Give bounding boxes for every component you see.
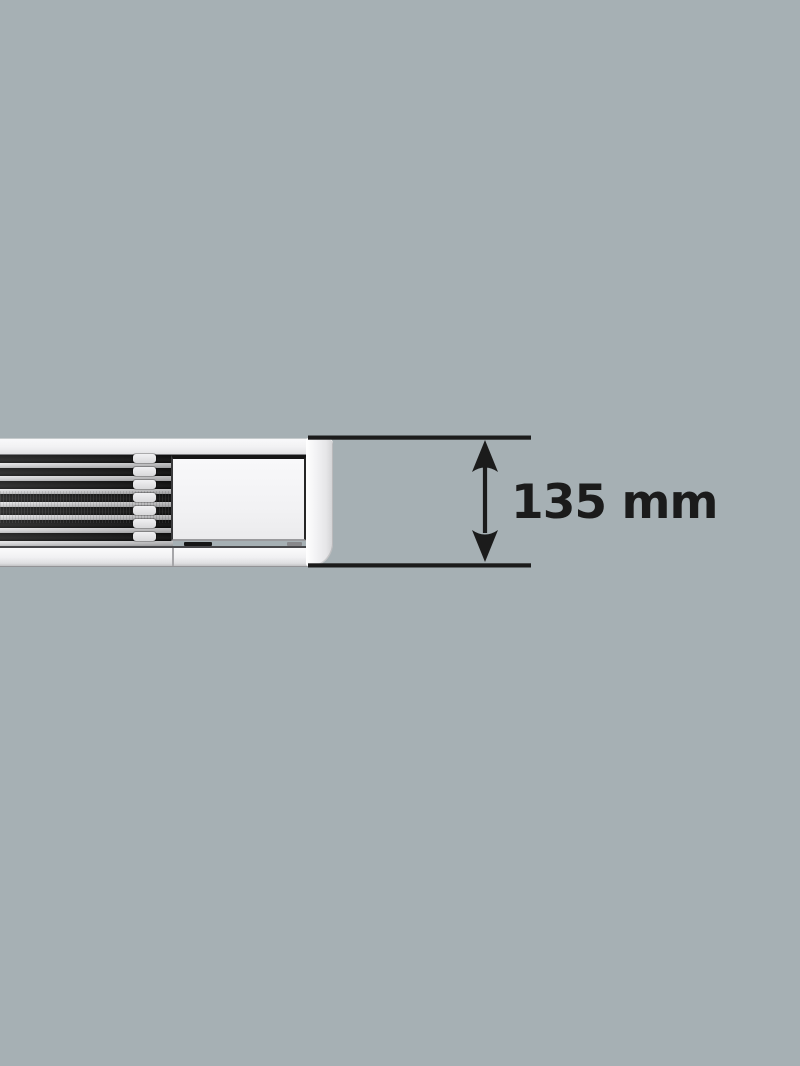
arrow-up-icon [472, 440, 498, 472]
dimension-extension-line-bottom [308, 563, 531, 567]
dimension-diagram: 135 mm [0, 0, 800, 1066]
product-side-view [0, 438, 333, 567]
access-panel [171, 455, 308, 541]
dimension-extension-line-top [308, 436, 531, 440]
unit-bottom-frame [0, 546, 311, 567]
louver-clip [133, 506, 156, 515]
dimension-arrow-shaft [483, 467, 487, 533]
unit-top-frame [0, 438, 307, 455]
louver-clip [133, 454, 156, 463]
louver-clip [133, 532, 156, 541]
arrow-down-icon [472, 530, 498, 562]
louver-clip [133, 467, 156, 476]
dimension-label: 135 mm [511, 478, 717, 528]
louver-clip [133, 519, 156, 528]
louver-clip [133, 493, 156, 502]
dimension-annotation [300, 425, 545, 575]
louver-clip-rail [133, 455, 156, 546]
louver-clip [133, 480, 156, 489]
bottom-frame-seam [172, 548, 174, 566]
